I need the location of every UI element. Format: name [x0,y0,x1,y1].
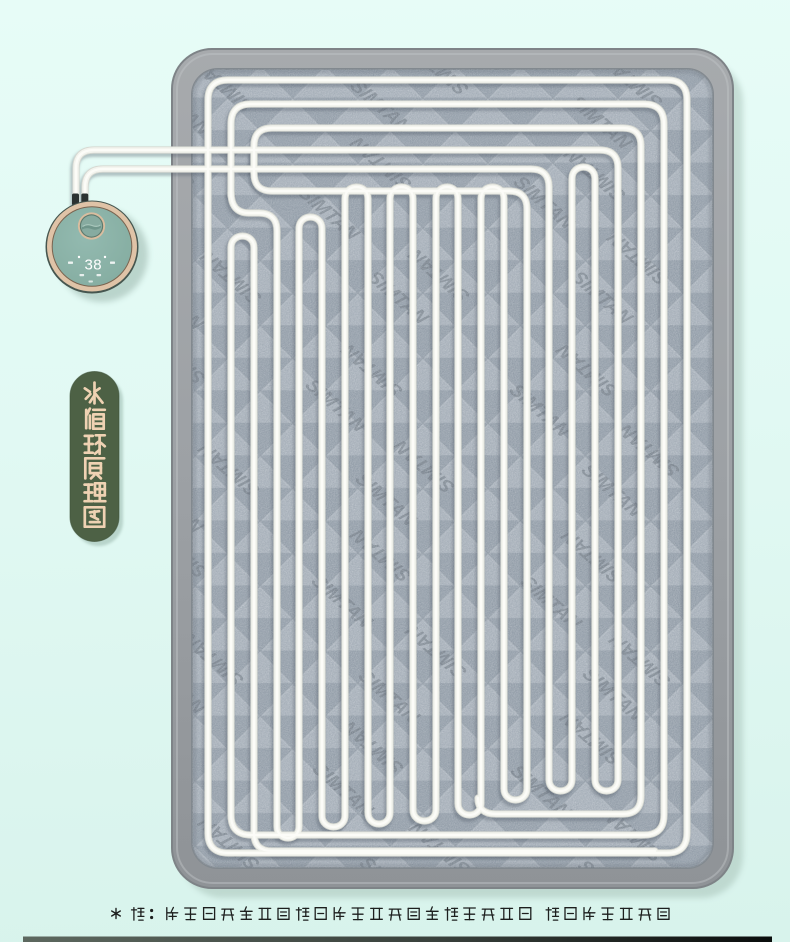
svg-text:38: 38 [85,257,103,274]
